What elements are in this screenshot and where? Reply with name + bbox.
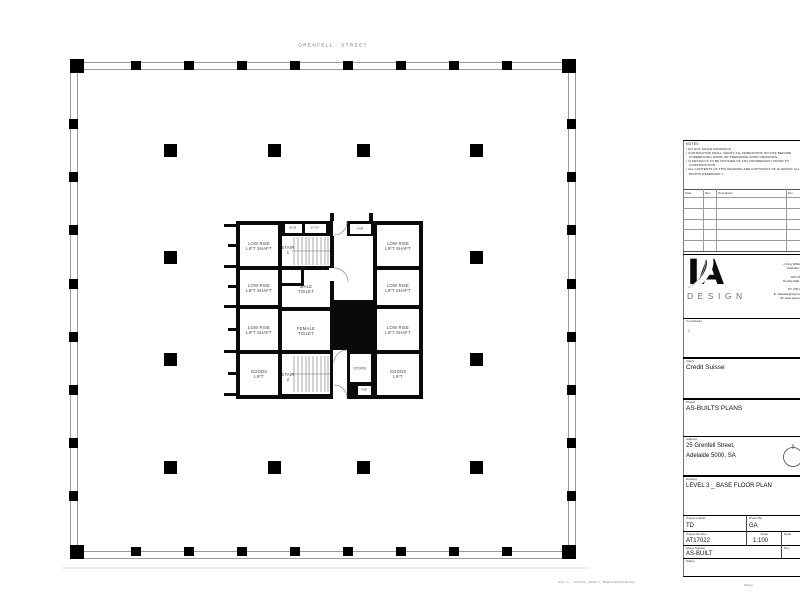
room-label-store: STORE	[353, 367, 366, 372]
contact-block: Lev 2 King William St Adelaide SA 5 GPO …	[738, 258, 800, 300]
project-number-value: AT17022	[686, 538, 710, 545]
address-label: Address	[686, 438, 697, 441]
note-item: CONTRACTOR SHALL VERIFY ALL DIMENSIONS O…	[686, 151, 800, 159]
ia-design-logo: IA DESIGN	[687, 258, 737, 301]
titleblock-line	[683, 576, 800, 577]
room-label-low-rise-lift-r1: LOW RISELIFT SHAFT	[385, 241, 410, 251]
floor-plan-svg	[0, 0, 800, 600]
consultants-value: 1	[688, 330, 690, 333]
drawn-by-label: Drawn By	[749, 517, 762, 520]
file-path-note: Note: C:\ ... \ AT17022 _ LEVEL 3 _ BASE…	[558, 580, 635, 584]
room-label-goods-lift-right: GOODSLIFT	[390, 369, 407, 379]
notes-list: DO NOT SCALE DRAWINGS. CONTRACTOR SHALL …	[686, 147, 800, 176]
address-line2: Adelaide 5000, SA	[686, 453, 736, 460]
project-value: AS-BUILTS PLANS	[686, 405, 742, 412]
revision-label: Rev	[784, 547, 789, 550]
scale-value: 1:100	[736, 538, 768, 545]
client-label: Client	[686, 360, 694, 363]
room-label-stair-1: STAIR1	[281, 245, 294, 255]
notes-heading: NOTES	[686, 142, 699, 146]
status-label: Status	[686, 560, 695, 563]
room-label-goods-lift-left: GOODSLIFT	[251, 369, 268, 379]
drawing-title: LEVEL 3 _ BASE FLOOR PLAN	[686, 483, 772, 490]
titleblock-line	[683, 558, 800, 559]
rev-header-description: Description	[718, 191, 733, 195]
address-line1: 25 Grenfell Street,	[686, 443, 735, 450]
drawn-by-value: GA	[749, 523, 758, 530]
project-label: Project	[686, 401, 695, 404]
north-arrow-icon	[784, 444, 800, 467]
room-label-low-rise-lift-l1: LOW RISELIFT SHAFT	[246, 241, 271, 251]
rev-header-date: Date	[685, 191, 691, 195]
titleblock-line	[683, 140, 800, 141]
room-label-etsa: ETSA	[311, 226, 319, 229]
room-label-low-rise-lift-r3: LOW RISELIFT SHAFT	[385, 325, 410, 335]
consultants-label: Consultants	[686, 320, 702, 323]
room-label-low-rise-lift-r2: LOW RISELIFT SHAFT	[385, 283, 410, 293]
room-label-female-toilet: FEMALETOILET	[297, 326, 315, 336]
titleblock-line	[683, 357, 800, 359]
drawing-sheet: { "plan": { "street_label": "GRENFELL ST…	[0, 0, 800, 600]
titleblock-line	[683, 398, 800, 400]
titleblock-line	[683, 436, 800, 437]
plot-note: Plotted	[744, 583, 753, 587]
project-leader-value: TD	[686, 523, 694, 530]
room-label-fhr-bottom: FHR	[361, 388, 368, 391]
room-label-low-rise-lift-l2: LOW RISELIFT SHAFT	[246, 283, 271, 293]
drawing-label: Drawing	[686, 478, 697, 481]
note-item: IA DESIGN IS TO BE NOTIFIED OF ANY DISCR…	[686, 159, 800, 167]
room-label-fhr-top: FHR	[357, 227, 364, 230]
scale-label: Scale	[740, 533, 768, 536]
logo-swoosh-icon	[687, 258, 737, 289]
room-label-stair-2: STAIR2	[281, 372, 294, 382]
project-leader-label: Project Leader	[686, 517, 706, 520]
room-label-bcm: BCM	[289, 226, 296, 229]
project-number-label: Project Number	[686, 533, 707, 536]
rev-header-drn: Drn	[788, 191, 793, 195]
note-item: ALL CONTENTS OF THIS DRAWING ARE COPYRIG…	[686, 167, 800, 175]
room-label-low-rise-lift-l3: LOW RISELIFT SHAFT	[246, 325, 271, 335]
room-label-male-toilet: MALETOILET	[298, 284, 314, 294]
street-label: GRENFELL STREET	[298, 43, 367, 48]
client-value: Credit Suisse	[686, 364, 725, 371]
rev-header-rev: Rev	[705, 191, 710, 195]
sheet-number-label: Sheet Number	[686, 547, 705, 550]
titleblock-line	[683, 475, 800, 477]
drawing-number-label: Draw	[784, 533, 791, 536]
